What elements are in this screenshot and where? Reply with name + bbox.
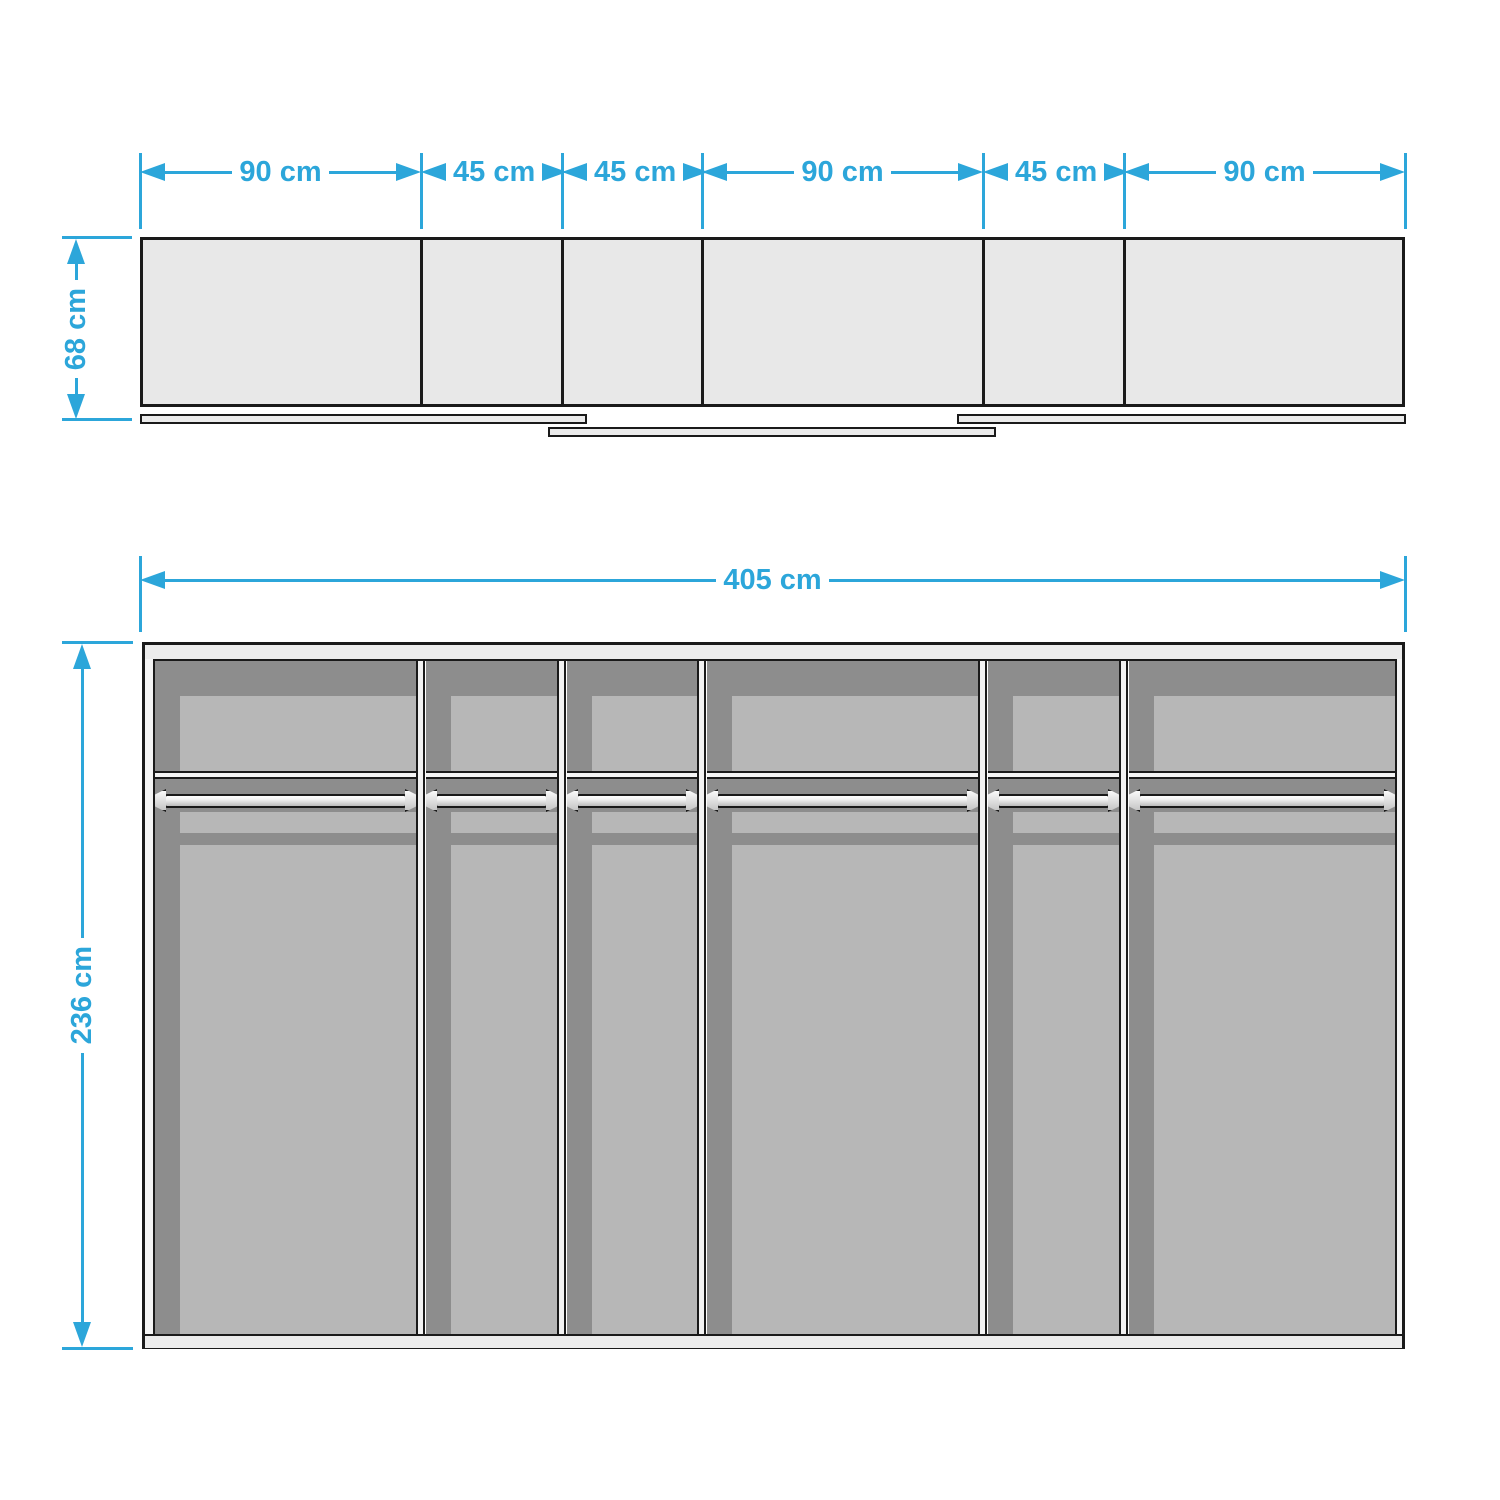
- compartment-1: [155, 659, 416, 1334]
- hanging-rail: [716, 794, 969, 808]
- dimension-segment-2: 45 cm: [421, 159, 562, 185]
- divider-panel: [1119, 659, 1128, 1334]
- upper-cubby-back-panel: [592, 696, 697, 771]
- bottom-panel: [145, 1334, 1402, 1348]
- hanging-rail: [997, 794, 1110, 808]
- top-view-divider: [420, 240, 423, 404]
- rail-end-cap: [1384, 789, 1395, 812]
- shelf: [567, 771, 697, 779]
- sliding-door-rail: [140, 414, 587, 424]
- top-view-divider: [561, 240, 564, 404]
- dimension-segment-1: 90 cm: [140, 159, 421, 185]
- rail-end-cap: [988, 789, 999, 812]
- hanging-area-back-panel: [1154, 812, 1395, 1334]
- left-side-panel: [145, 659, 155, 1334]
- hanging-rail: [435, 794, 548, 808]
- shadow-band: [180, 833, 416, 845]
- dimension-label: 90 cm: [794, 158, 890, 187]
- compartment-5: [988, 659, 1119, 1334]
- rail-end-cap: [426, 789, 437, 812]
- extension-line: [62, 1347, 133, 1350]
- arrowhead-down-icon: [67, 394, 85, 419]
- top-view-divider: [701, 240, 704, 404]
- dimension-label: 45 cm: [446, 158, 542, 187]
- arrowhead-right-icon: [1380, 163, 1405, 181]
- rail-end-cap: [405, 789, 416, 812]
- sliding-door-rail: [957, 414, 1406, 424]
- shelf: [426, 771, 557, 779]
- shelf: [1129, 771, 1395, 779]
- compartment-6: [1129, 659, 1395, 1334]
- shelf: [988, 771, 1119, 779]
- dimension-total-width: 405 cm: [140, 567, 1405, 593]
- dimension-label: 236 cm: [68, 938, 97, 1052]
- arrowhead-left-icon: [421, 163, 446, 181]
- arrowhead-up-icon: [67, 239, 85, 264]
- dimension-label: 45 cm: [587, 158, 683, 187]
- dimension-depth: 68 cm: [61, 239, 91, 419]
- hanging-rail: [164, 794, 407, 808]
- rail-end-cap: [567, 789, 578, 812]
- arrowhead-up-icon: [73, 644, 91, 669]
- rail-end-cap: [1129, 789, 1140, 812]
- arrowhead-left-icon: [702, 163, 727, 181]
- hanging-area-back-panel: [180, 812, 416, 1334]
- top-panel: [145, 645, 1402, 661]
- dimension-label: 45 cm: [1008, 158, 1104, 187]
- arrowhead-right-icon: [958, 163, 983, 181]
- wardrobe-dimension-diagram: 90 cm 45 cm 45 cm 90 cm 45 cm 90 cm: [0, 0, 1500, 1500]
- shadow-band: [732, 833, 978, 845]
- right-side-panel: [1395, 659, 1402, 1334]
- divider-panel: [557, 659, 566, 1334]
- dimension-segment-6: 90 cm: [1124, 159, 1405, 185]
- shelf: [155, 771, 416, 779]
- compartment-4: [707, 659, 978, 1334]
- upper-cubby-back-panel: [451, 696, 557, 771]
- dimension-segment-3: 45 cm: [562, 159, 702, 185]
- rail-end-cap: [1108, 789, 1119, 812]
- divider-panel: [416, 659, 425, 1334]
- arrowhead-left-icon: [1124, 163, 1149, 181]
- rail-end-cap: [707, 789, 718, 812]
- rail-end-cap: [686, 789, 697, 812]
- upper-cubby-back-panel: [732, 696, 978, 771]
- compartment-3: [567, 659, 697, 1334]
- shadow-band: [451, 833, 557, 845]
- sliding-door-rail: [548, 427, 996, 437]
- upper-cubby-back-panel: [180, 696, 416, 771]
- hanging-rail: [576, 794, 688, 808]
- dimension-label: 405 cm: [716, 566, 828, 595]
- dimension-segment-4: 90 cm: [702, 159, 983, 185]
- arrowhead-left-icon: [562, 163, 587, 181]
- arrowhead-right-icon: [1380, 571, 1405, 589]
- shelf: [707, 771, 978, 779]
- arrowhead-left-icon: [140, 163, 165, 181]
- rail-end-cap: [967, 789, 978, 812]
- arrowhead-right-icon: [396, 163, 421, 181]
- divider-panel: [697, 659, 706, 1334]
- upper-cubby-back-panel: [1154, 696, 1395, 771]
- rail-end-cap: [546, 789, 557, 812]
- shadow-band: [1154, 833, 1395, 845]
- hanging-area-back-panel: [451, 812, 557, 1334]
- dimension-segment-5: 45 cm: [983, 159, 1124, 185]
- wardrobe-top-view: [140, 237, 1405, 407]
- top-view-divider: [1123, 240, 1126, 404]
- arrowhead-left-icon: [983, 163, 1008, 181]
- rail-end-cap: [155, 789, 166, 812]
- hanging-rail: [1138, 794, 1386, 808]
- dimension-label: 68 cm: [62, 280, 91, 378]
- compartment-2: [426, 659, 557, 1334]
- arrowhead-down-icon: [73, 1322, 91, 1347]
- upper-cubby-back-panel: [1013, 696, 1119, 771]
- arrowhead-left-icon: [140, 571, 165, 589]
- dimension-height: 236 cm: [67, 644, 97, 1347]
- dimension-label: 90 cm: [1216, 158, 1312, 187]
- dimension-label: 90 cm: [232, 158, 328, 187]
- hanging-area-back-panel: [1013, 812, 1119, 1334]
- top-view-divider: [982, 240, 985, 404]
- shadow-band: [1013, 833, 1119, 845]
- shadow-band: [592, 833, 697, 845]
- hanging-area-back-panel: [732, 812, 978, 1334]
- hanging-area-back-panel: [592, 812, 697, 1334]
- divider-panel: [978, 659, 987, 1334]
